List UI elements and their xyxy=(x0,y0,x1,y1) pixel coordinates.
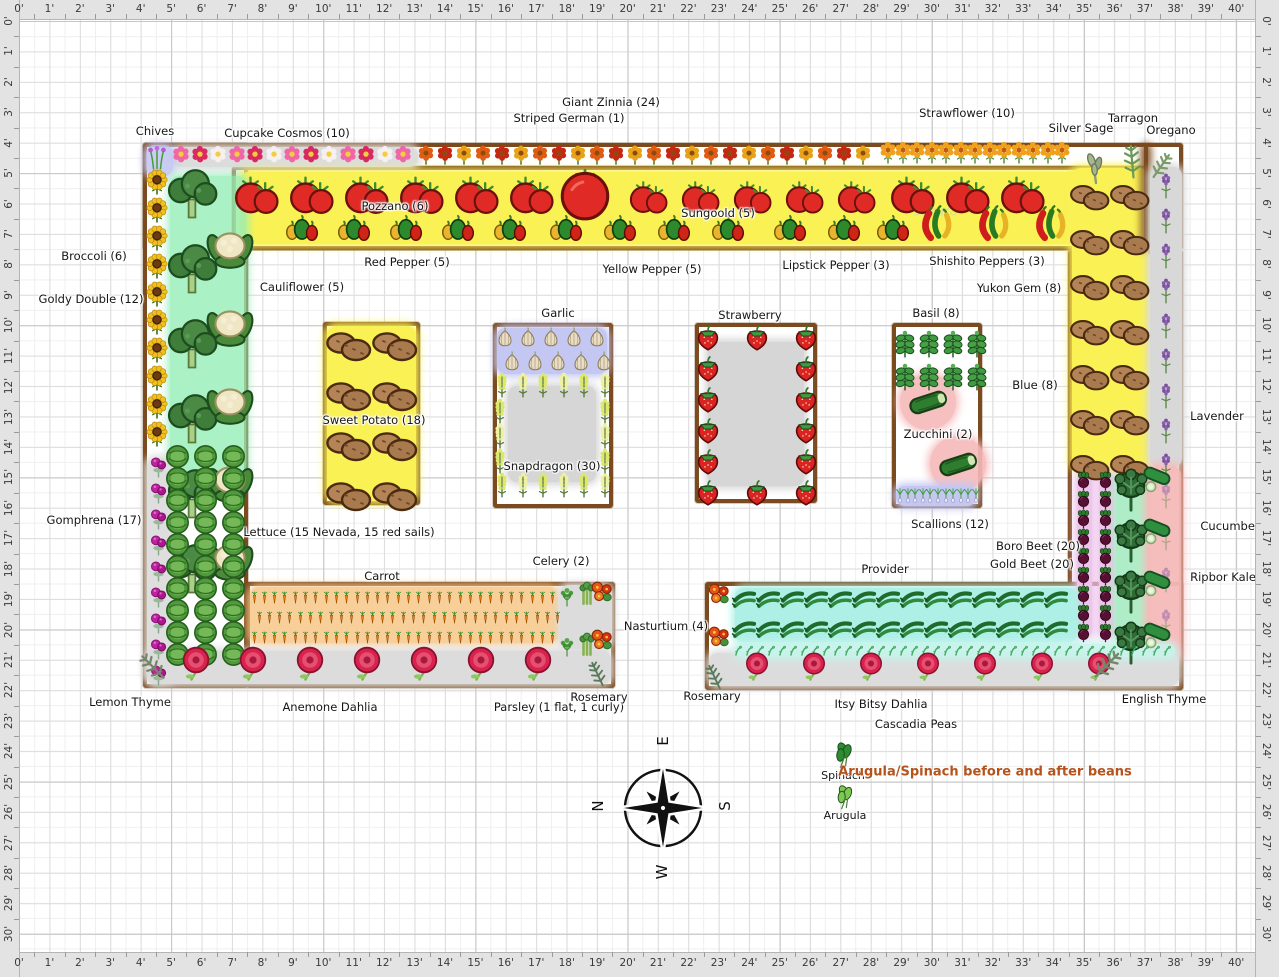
ruler-label-top: 36' xyxy=(1106,3,1122,15)
ruler-tick xyxy=(825,952,826,957)
ruler-tick xyxy=(460,14,461,19)
plant-lavender-icon[interactable] xyxy=(1152,276,1180,304)
plant-beet-icon[interactable] xyxy=(1074,471,1093,490)
plant-bean-icon[interactable] xyxy=(875,586,902,613)
plant-dahlia-icon[interactable] xyxy=(292,645,328,681)
ruler-label-bottom: 36' xyxy=(1106,957,1122,969)
plant-pepper3-icon[interactable] xyxy=(549,211,583,245)
plant-potato-icon[interactable] xyxy=(1109,267,1151,309)
plant-label: Lavender xyxy=(1190,410,1244,422)
ruler-label-left: 12' xyxy=(3,378,15,394)
plant-lemonthyme-icon[interactable] xyxy=(134,648,170,684)
ruler-tick xyxy=(1130,14,1131,19)
ruler-label-bottom: 7' xyxy=(227,957,237,969)
plant-label: Rosemary xyxy=(570,691,627,703)
plant-label: Yukon Gem (8) xyxy=(977,282,1061,294)
plant-label: Cauliflower (5) xyxy=(260,281,344,293)
ruler-label-top: 17' xyxy=(528,3,544,15)
plant-chives-icon[interactable] xyxy=(143,143,171,171)
ruler-tick xyxy=(1256,188,1261,189)
ruler-tick xyxy=(704,952,705,957)
plant-dahlia-icon[interactable] xyxy=(406,645,442,681)
plant-chili-icon[interactable] xyxy=(1029,201,1071,243)
ruler-tick xyxy=(217,14,218,19)
plant-bean-icon[interactable] xyxy=(995,616,1022,643)
plant-englishthyme-icon[interactable] xyxy=(1089,645,1127,683)
plant-potato-icon[interactable] xyxy=(1109,222,1151,264)
ruler-tick xyxy=(14,614,19,615)
plant-label: Sungoold (5) xyxy=(681,207,755,219)
plant-garlic-icon[interactable] xyxy=(517,327,539,349)
plant-bean-icon[interactable] xyxy=(899,586,926,613)
ruler-tick xyxy=(978,952,979,957)
plant-bean-icon[interactable] xyxy=(923,586,950,613)
ruler-tick xyxy=(765,14,766,19)
plant-bean-icon[interactable] xyxy=(899,616,926,643)
ruler-tick xyxy=(126,14,127,19)
plant-chili-icon[interactable] xyxy=(915,201,957,243)
ruler-label-right: 1' xyxy=(1260,47,1272,57)
plant-beet-icon[interactable] xyxy=(1074,585,1093,604)
plant-bean-icon[interactable] xyxy=(947,586,974,613)
plant-potato-icon[interactable] xyxy=(325,323,373,371)
plant-label: Boro Beet (20) xyxy=(996,540,1080,552)
ruler-label-left: 14' xyxy=(3,439,15,455)
plant-basil-icon[interactable] xyxy=(962,361,992,391)
plant-lavender-icon[interactable] xyxy=(1152,381,1180,409)
plant-strawberry-icon[interactable] xyxy=(791,476,821,506)
ruler-tick xyxy=(1221,952,1222,957)
plant-strawberry-icon[interactable] xyxy=(693,352,723,382)
plant-potato-icon[interactable] xyxy=(1069,222,1111,264)
plant-dahlia-icon[interactable] xyxy=(463,645,499,681)
ruler-label-top: 30' xyxy=(924,3,940,15)
plant-lavender-icon[interactable] xyxy=(1152,241,1180,269)
ruler-tick xyxy=(95,952,96,957)
ruler-tick xyxy=(1038,14,1039,19)
ruler-tick xyxy=(1160,952,1161,957)
plant-potato-icon[interactable] xyxy=(371,323,419,371)
plant-pea-icon[interactable] xyxy=(1162,644,1176,658)
plant-pepper3-icon[interactable] xyxy=(876,211,910,245)
plant-beet-icon[interactable] xyxy=(1074,490,1093,509)
ruler-tick xyxy=(521,952,522,957)
ruler-label-bottom: 3' xyxy=(105,957,115,969)
plant-lavender-icon[interactable] xyxy=(1152,416,1180,444)
ruler-tick xyxy=(1256,432,1261,433)
plant-beet-icon[interactable] xyxy=(1074,604,1093,623)
plant-snapdragon-icon[interactable] xyxy=(486,396,514,424)
plant-label: Blue (8) xyxy=(1012,379,1057,391)
ruler-label-top: 38' xyxy=(1167,3,1183,15)
plant-zucchini-icon[interactable] xyxy=(935,441,981,487)
ruler-label-top: 0' xyxy=(14,3,24,15)
plant-label: Giant Zinnia (24) xyxy=(562,96,660,108)
ruler-label-right: 30' xyxy=(1260,926,1272,942)
plant-dahlia-icon[interactable] xyxy=(235,645,271,681)
plant-lavender-icon[interactable] xyxy=(1152,206,1180,234)
plant-label: Gold Beet (20) xyxy=(990,558,1074,570)
ruler-label-left: 9' xyxy=(3,290,15,300)
plant-garlic-icon[interactable] xyxy=(586,327,608,349)
plant-strawflower-icon[interactable] xyxy=(1050,140,1074,164)
ruler-tick xyxy=(947,952,948,957)
plant-dahlia-icon[interactable] xyxy=(970,651,1000,681)
plant-cauliflower-icon[interactable] xyxy=(205,301,255,351)
ruler-tick xyxy=(14,736,19,737)
plant-bean-icon[interactable] xyxy=(971,586,998,613)
ruler-tick xyxy=(186,14,187,19)
ruler-label-right: 17' xyxy=(1260,530,1272,546)
plant-bean-icon[interactable] xyxy=(779,586,806,613)
ruler-label-bottom: 33' xyxy=(1015,957,1031,969)
plant-dahlia-icon[interactable] xyxy=(178,645,214,681)
plant-bean-icon[interactable] xyxy=(755,616,782,643)
plant-bean-icon[interactable] xyxy=(851,586,878,613)
ruler-label-bottom: 25' xyxy=(772,957,788,969)
plant-potato-icon[interactable] xyxy=(325,473,373,521)
plant-bean-icon[interactable] xyxy=(779,616,806,643)
plant-bean-icon[interactable] xyxy=(731,616,758,643)
plant-label: Basil (8) xyxy=(912,307,959,319)
ruler-label-top: 13' xyxy=(406,3,422,15)
ruler-label-bottom: 21' xyxy=(650,957,666,969)
plant-potato-icon[interactable] xyxy=(1069,312,1111,354)
plant-strawberry-icon[interactable] xyxy=(742,476,772,506)
ruler-tick xyxy=(643,952,644,957)
plant-dahlia-icon[interactable] xyxy=(520,645,556,681)
plant-label: Cupcake Cosmos (10) xyxy=(224,127,350,139)
plant-lavender-icon[interactable] xyxy=(1152,171,1180,199)
ruler-tick xyxy=(14,401,19,402)
ruler-tick xyxy=(1256,36,1261,37)
ruler-tick xyxy=(308,952,309,957)
ruler-tick xyxy=(1069,14,1070,19)
ruler-label-left: 6' xyxy=(3,199,15,209)
ruler-tick xyxy=(14,219,19,220)
ruler-label-left: 19' xyxy=(3,591,15,607)
plant-label: Cascadia Peas xyxy=(875,718,957,730)
plant-bean-icon[interactable] xyxy=(947,616,974,643)
garden-canvas: Sakura ChivesCupcake Cosmos (10)Giant Zi… xyxy=(0,0,1279,977)
ruler-tick xyxy=(795,14,796,19)
plant-scallion-icon[interactable] xyxy=(967,485,985,503)
ruler-tick xyxy=(14,128,19,129)
ruler-label-bottom: 28' xyxy=(863,957,879,969)
plant-pepper3-icon[interactable] xyxy=(441,211,475,245)
plant-dahlia-icon[interactable] xyxy=(856,651,886,681)
ruler-label-top: 3' xyxy=(105,3,115,15)
ruler-tick xyxy=(34,14,35,19)
plant-arugula-icon[interactable] xyxy=(830,783,858,811)
plant-strawberry-icon[interactable] xyxy=(693,445,723,475)
ruler-tick xyxy=(14,371,19,372)
plant-bean-icon[interactable] xyxy=(731,586,758,613)
ruler-tick xyxy=(1256,219,1261,220)
plant-bean-icon[interactable] xyxy=(923,616,950,643)
ruler-label-top: 28' xyxy=(863,3,879,15)
plant-strawberry-icon[interactable] xyxy=(693,321,723,351)
ruler-tick xyxy=(14,858,19,859)
ruler-tick xyxy=(1038,952,1039,957)
plant-label: Goldy Double (12) xyxy=(39,293,144,305)
ruler-tick xyxy=(917,14,918,19)
ruler-label-right: 2' xyxy=(1260,77,1272,87)
ruler-label-right: 7' xyxy=(1260,229,1272,239)
plant-rosemary-icon[interactable] xyxy=(699,661,729,691)
plant-label: Zucchini (2) xyxy=(904,428,973,440)
ruler-tick xyxy=(14,493,19,494)
plant-dahlia-icon[interactable] xyxy=(349,645,385,681)
ruler-label-top: 33' xyxy=(1015,3,1031,15)
plant-bean-icon[interactable] xyxy=(1019,586,1046,613)
plant-pepper3-icon[interactable] xyxy=(603,211,637,245)
ruler-tick xyxy=(886,952,887,957)
plant-potato-icon[interactable] xyxy=(1109,402,1151,444)
plant-potato-icon[interactable] xyxy=(1109,177,1151,219)
plant-label: Provider xyxy=(861,563,908,575)
ruler-label-bottom: 5' xyxy=(166,957,176,969)
plant-bean-icon[interactable] xyxy=(1043,616,1070,643)
plant-nasturtium-icon[interactable] xyxy=(705,623,733,651)
plant-bean-icon[interactable] xyxy=(1043,586,1070,613)
plant-tomato-icon[interactable] xyxy=(234,174,278,218)
plant-garlic-icon[interactable] xyxy=(540,327,562,349)
ruler-tick xyxy=(1069,952,1070,957)
plant-basil-icon[interactable] xyxy=(962,328,992,358)
ruler-label-bottom: 30' xyxy=(924,957,940,969)
plant-strawberry-icon[interactable] xyxy=(791,383,821,413)
plan-note: Arugula/Spinach before and after beans xyxy=(838,765,1132,780)
compass-north-label: N xyxy=(589,800,607,811)
ruler-tick xyxy=(734,952,735,957)
ruler-label-bottom: 11' xyxy=(346,957,362,969)
plant-strawberry-icon[interactable] xyxy=(791,352,821,382)
plant-label: Chives xyxy=(136,125,174,137)
ruler-label-bottom: 19' xyxy=(589,957,605,969)
plant-carrot-icon[interactable] xyxy=(550,610,565,625)
plant-potato-icon[interactable] xyxy=(1069,357,1111,399)
ruler-tick xyxy=(1099,952,1100,957)
plant-lavender-icon[interactable] xyxy=(1152,346,1180,374)
ruler-tick xyxy=(1256,858,1261,859)
plant-bean-icon[interactable] xyxy=(851,616,878,643)
ruler-tick xyxy=(14,341,19,342)
plant-beet-icon[interactable] xyxy=(1074,566,1093,585)
compass-east-label: E xyxy=(654,736,672,745)
ruler-tick xyxy=(1256,401,1261,402)
ruler-tick xyxy=(1256,827,1261,828)
ruler-tick xyxy=(186,952,187,957)
ruler-tick xyxy=(521,14,522,19)
ruler-label-top: 14' xyxy=(437,3,453,15)
plant-pepper3-icon[interactable] xyxy=(827,211,861,245)
ruler-tick xyxy=(552,14,553,19)
ruler-tick xyxy=(247,952,248,957)
plant-snapdragon-icon[interactable] xyxy=(486,421,514,449)
ruler-tick xyxy=(308,14,309,19)
plant-lavender-icon[interactable] xyxy=(1152,311,1180,339)
ruler-tick xyxy=(582,14,583,19)
ruler-tick xyxy=(278,14,279,19)
ruler-tick xyxy=(14,706,19,707)
plant-dahlia-icon[interactable] xyxy=(799,651,829,681)
plant-bean-icon[interactable] xyxy=(827,616,854,643)
ruler-tick xyxy=(14,827,19,828)
ruler-label-top: 26' xyxy=(802,3,818,15)
ruler-tick xyxy=(14,158,19,159)
plant-label: Striped German (1) xyxy=(513,112,624,124)
plant-label: Lettuce (15 Nevada, 15 red sails) xyxy=(243,526,434,538)
ruler-tick xyxy=(1099,14,1100,19)
ruler-label-bottom: 20' xyxy=(619,957,635,969)
ruler-tick xyxy=(430,952,431,957)
plant-beet-icon[interactable] xyxy=(1074,623,1093,642)
plant-snapdragon-icon[interactable] xyxy=(591,470,619,498)
plant-bean-icon[interactable] xyxy=(995,586,1022,613)
ruler-tick xyxy=(1191,14,1192,19)
plant-garlic-icon[interactable] xyxy=(494,327,516,349)
ruler-tick xyxy=(217,952,218,957)
ruler-tick xyxy=(156,14,157,19)
plant-strawberry-icon[interactable] xyxy=(742,321,772,351)
compass-west-label: W xyxy=(653,865,671,880)
plant-nasturtium-icon[interactable] xyxy=(588,626,616,654)
plant-rosemary-icon[interactable] xyxy=(582,658,612,688)
plant-cucumber-icon[interactable] xyxy=(1139,459,1177,497)
ruler-label-bottom: 0' xyxy=(14,957,24,969)
plant-label: Pozzano (6) xyxy=(362,200,429,212)
plant-cosmos-icon[interactable] xyxy=(392,145,414,167)
plant-zucchini-icon[interactable] xyxy=(905,379,951,425)
plant-nasturtium-icon[interactable] xyxy=(588,578,616,606)
plant-bean-icon[interactable] xyxy=(803,586,830,613)
plant-potato-icon[interactable] xyxy=(325,423,373,471)
ruler-tick xyxy=(1256,584,1261,585)
plant-pepper3-icon[interactable] xyxy=(285,211,319,245)
ruler-tick xyxy=(247,14,248,19)
plant-bean-icon[interactable] xyxy=(827,586,854,613)
ruler-tick xyxy=(1160,14,1161,19)
ruler-label-left: 15' xyxy=(3,469,15,485)
ruler-label-right: 28' xyxy=(1260,865,1272,881)
plant-broccoli-icon[interactable] xyxy=(165,168,219,222)
ruler-tick xyxy=(65,952,66,957)
ruler-tick xyxy=(856,952,857,957)
plant-bean-icon[interactable] xyxy=(971,616,998,643)
ruler-tick xyxy=(1256,919,1261,920)
plant-cauliflower-icon[interactable] xyxy=(205,223,255,273)
compass-south-label: S xyxy=(716,801,734,811)
ruler-label-bottom: 31' xyxy=(954,957,970,969)
plant-snapdragon-icon[interactable] xyxy=(591,421,619,449)
plant-bean-icon[interactable] xyxy=(875,616,902,643)
ruler-label-left: 11' xyxy=(3,348,15,364)
ruler-label-left: 20' xyxy=(3,621,15,637)
ruler-tick xyxy=(1256,797,1261,798)
ruler-label-top: 4' xyxy=(136,3,146,15)
plant-potato-icon[interactable] xyxy=(1109,357,1151,399)
plant-strawberry-icon[interactable] xyxy=(791,414,821,444)
ruler-label-left: 3' xyxy=(3,107,15,117)
ruler-label-right: 14' xyxy=(1260,439,1272,455)
ruler-tick xyxy=(1191,952,1192,957)
plant-dahlia-icon[interactable] xyxy=(913,651,943,681)
ruler-label-bottom: 14' xyxy=(437,957,453,969)
ruler-tick xyxy=(14,249,19,250)
plant-strawberry-icon[interactable] xyxy=(693,476,723,506)
plant-label: Silver Sage xyxy=(1049,122,1114,134)
plant-strawberry-icon[interactable] xyxy=(791,321,821,351)
ruler-tick xyxy=(491,952,492,957)
plant-cauliflower-icon[interactable] xyxy=(205,379,255,429)
ruler-label-right: 24' xyxy=(1260,743,1272,759)
ruler-label-top: 10' xyxy=(315,3,331,15)
plant-snapdragon-icon[interactable] xyxy=(591,396,619,424)
plant-nasturtium-icon[interactable] xyxy=(705,580,733,608)
plant-snapdragon-icon[interactable] xyxy=(591,370,619,398)
plant-strawberry-icon[interactable] xyxy=(791,445,821,475)
ruler-label-left: 21' xyxy=(3,652,15,668)
plant-beet-icon[interactable] xyxy=(1074,509,1093,528)
plant-potato-icon[interactable] xyxy=(371,423,419,471)
ruler-label-left: 13' xyxy=(3,408,15,424)
plant-label: Lipstick Pepper (3) xyxy=(782,259,889,271)
ruler-label-bottom: 16' xyxy=(498,957,514,969)
plant-cucumber-icon[interactable] xyxy=(1139,563,1177,601)
plant-zinnia-icon[interactable] xyxy=(852,144,874,166)
ruler-tick xyxy=(399,14,400,19)
ruler-label-bottom: 1' xyxy=(45,957,55,969)
plant-garlic-icon[interactable] xyxy=(563,327,585,349)
ruler-label-right: 6' xyxy=(1260,199,1272,209)
ruler-tick xyxy=(1256,249,1261,250)
ruler-tick xyxy=(1256,462,1261,463)
plant-bean-icon[interactable] xyxy=(755,586,782,613)
plant-potato-icon[interactable] xyxy=(1069,177,1111,219)
plant-label: Broccoli (6) xyxy=(61,250,126,262)
ruler-label-right: 20' xyxy=(1260,621,1272,637)
ruler-tick xyxy=(14,554,19,555)
plant-pepper3-icon[interactable] xyxy=(493,211,527,245)
plant-potato-icon[interactable] xyxy=(1109,312,1151,354)
ruler-label-top: 7' xyxy=(227,3,237,15)
plant-dahlia-icon[interactable] xyxy=(742,651,772,681)
plant-chili-icon[interactable] xyxy=(972,201,1014,243)
ruler-label-left: 26' xyxy=(3,804,15,820)
plant-bean-icon[interactable] xyxy=(1019,616,1046,643)
ruler-label-right: 10' xyxy=(1260,317,1272,333)
plant-dahlia-icon[interactable] xyxy=(1027,651,1057,681)
plant-cucumber-icon[interactable] xyxy=(1139,511,1177,549)
ruler-label-top: 32' xyxy=(985,3,1001,15)
ruler-label-right: 25' xyxy=(1260,774,1272,790)
plant-potato-icon[interactable] xyxy=(371,473,419,521)
ruler-label-top: 23' xyxy=(711,3,727,15)
ruler-tick xyxy=(14,675,19,676)
plant-strawberry-icon[interactable] xyxy=(693,383,723,413)
plant-bean-icon[interactable] xyxy=(803,616,830,643)
plant-potato-icon[interactable] xyxy=(1069,402,1111,444)
plant-pepper3-icon[interactable] xyxy=(773,211,807,245)
plant-label: Yellow Pepper (5) xyxy=(602,263,701,275)
plant-strawberry-icon[interactable] xyxy=(693,414,723,444)
plant-pepper3-icon[interactable] xyxy=(337,211,371,245)
plant-potato-icon[interactable] xyxy=(1069,267,1111,309)
plant-pepper3-icon[interactable] xyxy=(389,211,423,245)
ruler-tick xyxy=(1256,158,1261,159)
ruler-tick xyxy=(612,952,613,957)
